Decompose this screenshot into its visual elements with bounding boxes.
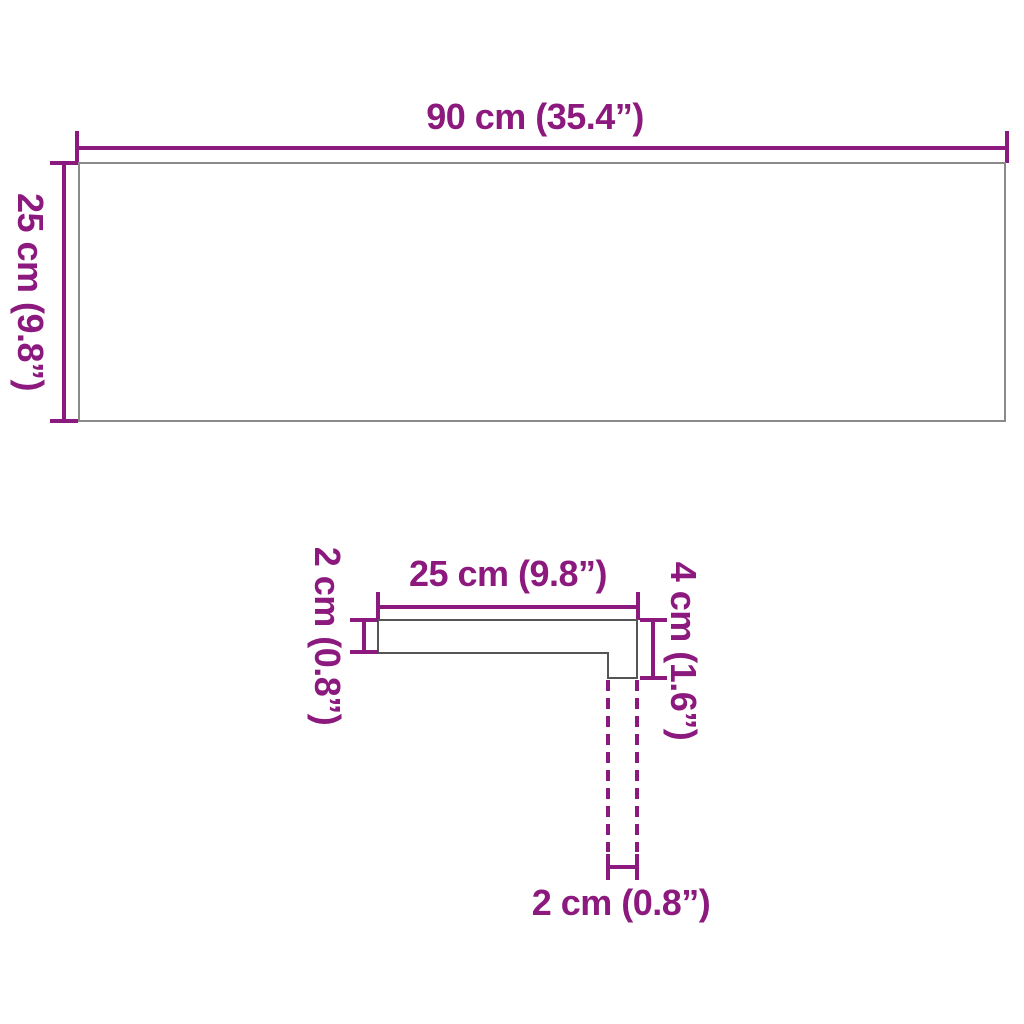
top-height-dimension-label: 25 cm (9.8”) (10, 142, 50, 442)
top-height-dimension-tick-top (50, 161, 78, 165)
profile-nose-height-dimension-label: 4 cm (1.6”) (663, 521, 703, 781)
top-width-dimension-tick-left (75, 131, 79, 163)
profile-nose-height-dimension-line (651, 620, 655, 680)
top-width-dimension-line (77, 146, 1007, 150)
profile-thickness-dimension-line (362, 620, 366, 653)
board-face-rectangle (78, 162, 1006, 422)
profile-thickness-dimension-tick-bottom (350, 650, 378, 654)
projection-dashed-line-left (606, 680, 610, 852)
top-height-dimension-tick-bottom (50, 419, 78, 423)
product-dimension-diagram: 90 cm (35.4”) 25 cm (9.8”) 25 cm (9.8”) … (0, 0, 1024, 1024)
profile-width-dimension-tick-left (376, 592, 380, 620)
profile-nose-depth-dimension-tick-left (606, 854, 610, 880)
profile-width-dimension-line (378, 605, 638, 609)
profile-nose-depth-dimension-tick-right (635, 854, 639, 880)
projection-dashed-line-right (635, 680, 639, 852)
top-width-dimension-tick-right (1005, 131, 1009, 163)
profile-width-dimension-label: 25 cm (9.8”) (308, 553, 708, 595)
profile-width-dimension-tick-right (636, 592, 640, 620)
profile-thickness-dimension-tick-top (350, 618, 378, 622)
top-width-dimension-label: 90 cm (35.4”) (335, 96, 735, 138)
profile-thickness-dimension-label: 2 cm (0.8”) (307, 506, 347, 766)
top-height-dimension-line (62, 163, 66, 421)
profile-nose-depth-dimension-line (608, 865, 637, 869)
tread-profile-outline (377, 619, 639, 680)
profile-nose-depth-dimension-label: 2 cm (0.8”) (421, 882, 821, 924)
